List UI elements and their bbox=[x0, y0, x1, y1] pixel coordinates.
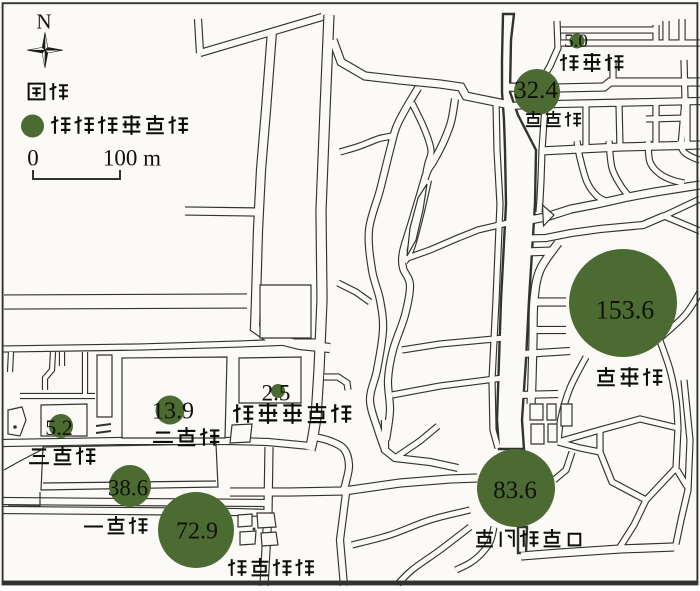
svg-text:5.2: 5.2 bbox=[45, 415, 73, 440]
svg-text:83.6: 83.6 bbox=[493, 477, 537, 504]
svg-text:100 m: 100 m bbox=[103, 145, 161, 170]
svg-text:5.0: 5.0 bbox=[564, 31, 588, 52]
svg-text:32.4: 32.4 bbox=[514, 77, 558, 104]
svg-text:13.9: 13.9 bbox=[152, 399, 194, 425]
svg-text:2.5: 2.5 bbox=[262, 380, 291, 405]
svg-text:N: N bbox=[36, 10, 51, 34]
svg-text:72.9: 72.9 bbox=[176, 519, 218, 545]
svg-text:38.6: 38.6 bbox=[108, 475, 148, 500]
svg-text:0: 0 bbox=[27, 145, 39, 170]
svg-text:153.6: 153.6 bbox=[596, 295, 655, 324]
